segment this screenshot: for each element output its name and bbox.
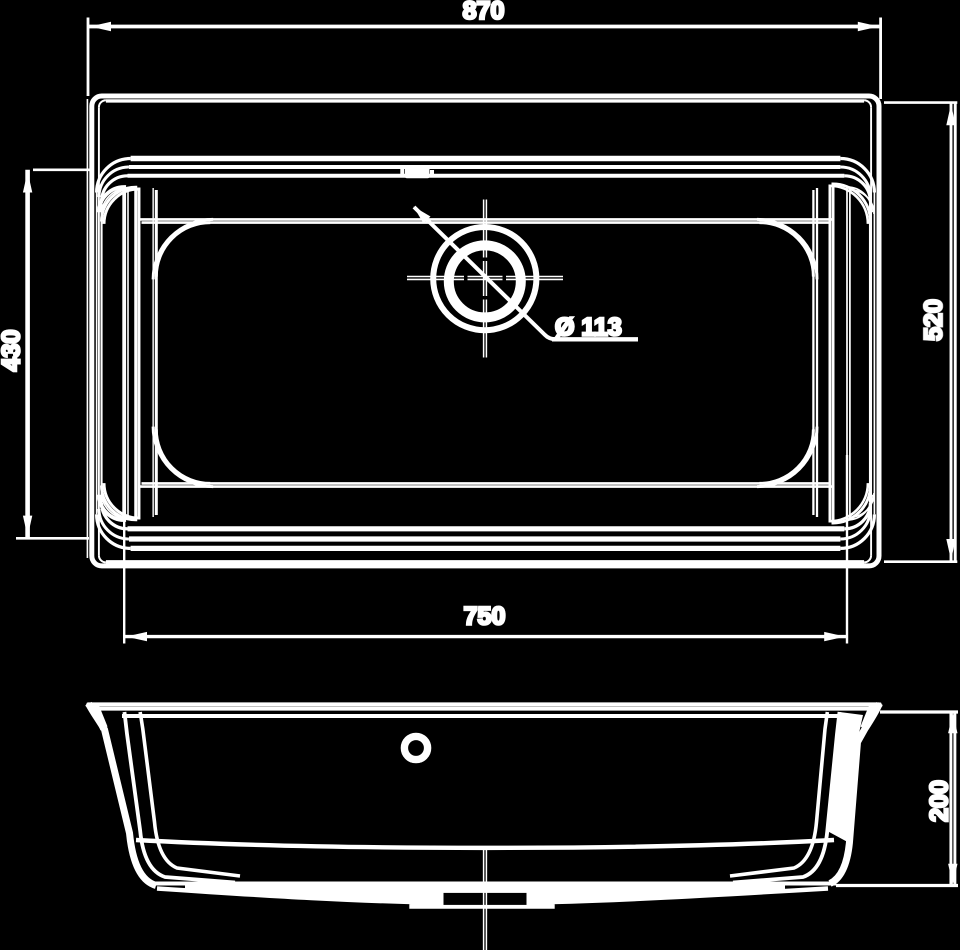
svg-text:870: 870 (463, 0, 505, 25)
svg-text:430: 430 (0, 330, 26, 372)
svg-text:200: 200 (926, 780, 954, 822)
svg-text:Ø 113: Ø 113 (555, 314, 622, 342)
svg-text:520: 520 (920, 299, 948, 341)
svg-text:750: 750 (464, 603, 506, 631)
